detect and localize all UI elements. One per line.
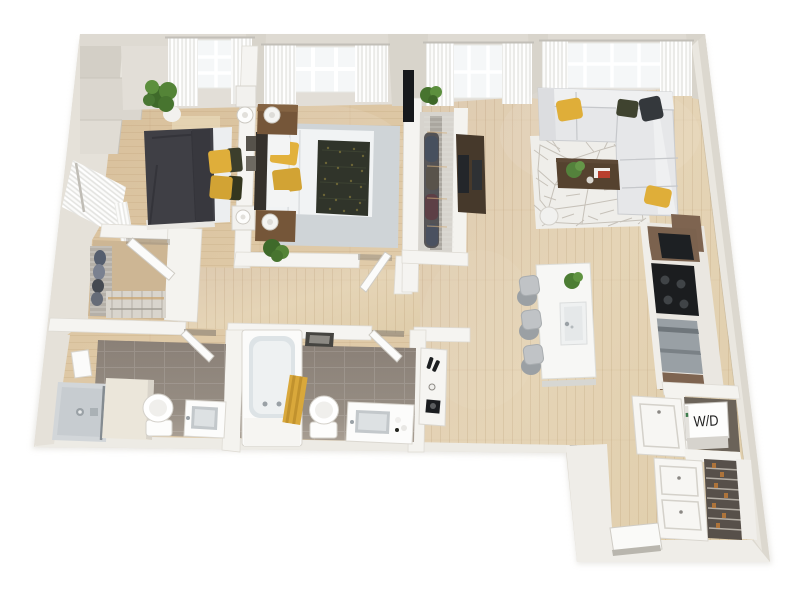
svg-text:W/D: W/D (693, 412, 719, 430)
